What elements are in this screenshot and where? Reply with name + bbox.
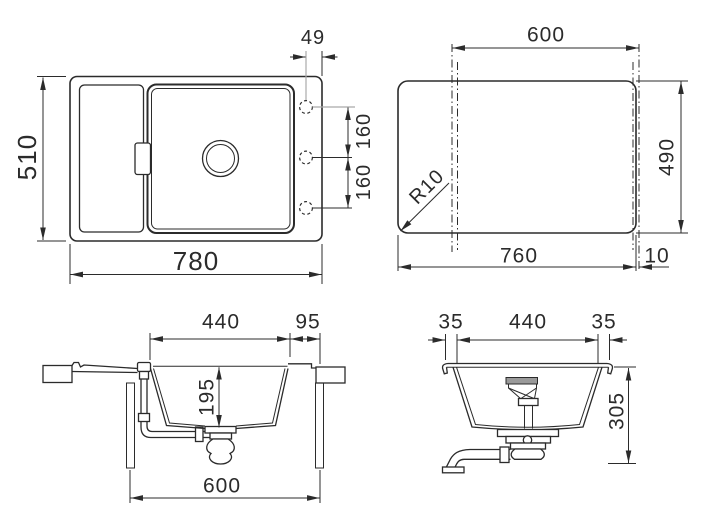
- front-section-view: [43, 333, 345, 503]
- dim-label-600-cabinet: 600: [203, 476, 241, 497]
- outlet-flange: [443, 467, 465, 473]
- dim-label-760: 760: [500, 246, 538, 267]
- dim-label-490: 490: [657, 138, 678, 176]
- tap-holes: [300, 101, 313, 215]
- sink-drawing-canvas: 49 510 780 160 160 600 490 R10 760 10 44…: [0, 0, 714, 513]
- dim-label-510: 510: [14, 134, 40, 180]
- technical-drawing: [0, 0, 714, 513]
- siphon-trap: [207, 439, 235, 464]
- drain-hole: [203, 141, 239, 177]
- dim-label-10: 10: [644, 246, 669, 267]
- dim-label-440-front: 440: [202, 312, 240, 333]
- dim-label-305: 305: [607, 392, 628, 430]
- dim-label-35-right: 35: [591, 312, 616, 333]
- dim-label-49: 49: [301, 28, 325, 48]
- cabinet-wall-right: [316, 383, 324, 468]
- dim-label-195: 195: [197, 378, 218, 416]
- dim-label-160-a: 160: [354, 113, 374, 149]
- dim-label-160-b: 160: [354, 164, 374, 200]
- dim-label-780: 780: [173, 248, 219, 274]
- cutout-view: [398, 44, 688, 271]
- worktop-left: [43, 366, 72, 383]
- overflow-cover: [506, 378, 538, 385]
- divider-clip: [135, 143, 151, 175]
- worktop-right: [316, 367, 345, 383]
- dim-label-35-left: 35: [438, 312, 463, 333]
- dim-label-600-cutout: 600: [527, 25, 565, 46]
- dim-label-440-side: 440: [509, 312, 547, 333]
- cabinet-wall-left: [127, 383, 135, 468]
- dim-label-95: 95: [295, 312, 320, 333]
